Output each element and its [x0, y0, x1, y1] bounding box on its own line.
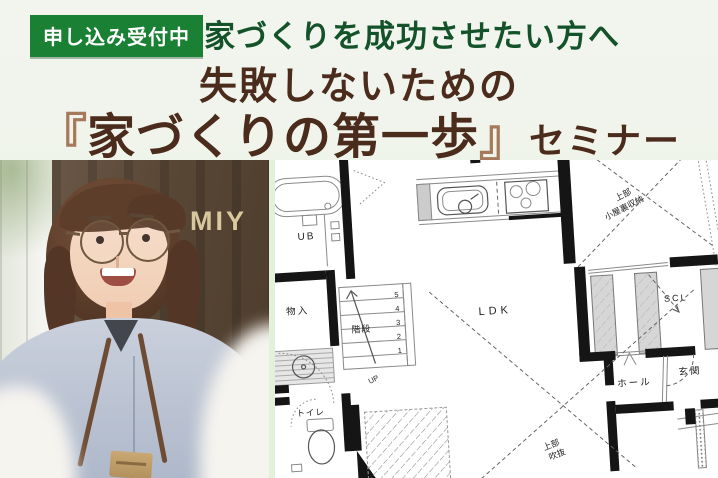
burner-2: [526, 181, 541, 196]
scl-shelf-3: [700, 268, 718, 349]
kitchen-divider: [497, 182, 499, 214]
floor-plan-svg: UB 物入: [275, 160, 718, 478]
stair-rail-strip: [403, 283, 416, 365]
void-label-group: 上部 吹抜: [541, 436, 567, 463]
label-stairs: 階段: [351, 323, 372, 335]
roof-dashed-corner: [354, 169, 386, 205]
backdrop-logo-text: MIY: [190, 206, 247, 237]
kitchen-end-panel: [417, 184, 432, 221]
label-up: UP: [367, 373, 380, 386]
label-toilet: トイレ: [296, 407, 325, 419]
bracket-close: 』: [479, 110, 529, 166]
kitchen-back-line: [416, 170, 568, 179]
nose: [116, 256, 119, 268]
wall-washer-bottom: [275, 385, 289, 395]
wall-storage-right: [326, 270, 340, 346]
wall-top-stub: [470, 160, 481, 163]
wall-hall-left: [604, 359, 615, 386]
kitchen-faucet: [458, 200, 472, 214]
status-badge: 申し込み受付中: [30, 15, 203, 57]
stair-num-4: 4: [395, 304, 400, 313]
stair-num-1: 1: [397, 346, 402, 355]
kitchen-faucet-arm: [470, 194, 478, 199]
wall-attic-bottom-right: [670, 254, 718, 267]
genkan-step-2: [664, 356, 671, 402]
wall-hall-bottom: [615, 401, 673, 414]
attic-edge-dotted-1: [694, 160, 716, 267]
label-storage: 物入: [286, 304, 310, 317]
stair-num-5: 5: [394, 290, 399, 299]
glasses-bridge: [119, 232, 128, 235]
title-suffix: セミナー: [529, 120, 681, 161]
hatched-area: [364, 407, 450, 478]
wall-ub-bottom: [275, 270, 326, 283]
bath-fixture-2: [331, 233, 339, 240]
attic-diagonal-2: [574, 160, 714, 255]
bracket-open: 『: [37, 110, 87, 166]
staff-photo: MIY: [0, 160, 269, 478]
stair-num-2: 2: [397, 332, 402, 341]
genkan-step-1: [660, 356, 667, 402]
attic-diagonal-1: [570, 160, 711, 267]
seminar-promo-banner: 申し込み受付中 家づくりを成功させたい方へ 失敗しないための 『家づくりの第一歩…: [0, 0, 718, 478]
name-tag: [109, 451, 153, 478]
burner-1: [510, 185, 523, 198]
wall-toilet-top: [275, 397, 290, 407]
bath-step: [302, 215, 317, 226]
wall-scl-left: [574, 267, 591, 361]
wall-ub-right: [339, 160, 355, 279]
bath-drain: [325, 203, 331, 209]
toilet-paper-holder: [292, 464, 302, 472]
bath-fixture-1: [331, 221, 339, 228]
attic-label-group: 上部 小屋裏収納: [597, 183, 645, 222]
porch-dotted-wall: [695, 410, 707, 468]
toilet-bowl: [307, 429, 335, 465]
label-ldk: LDK: [478, 304, 512, 318]
bath-partition: [324, 214, 327, 266]
attic-edge-dotted-2: [702, 160, 718, 267]
stair-num-3: 3: [396, 318, 401, 327]
plan-rotated-group: UB 物入: [275, 160, 718, 478]
floor-plan-panel: UB 物入: [275, 160, 718, 478]
burner-3: [521, 198, 532, 209]
wall-genkan-bottom: [700, 398, 718, 409]
label-scl: SCL: [664, 292, 688, 303]
label-ub: UB: [297, 231, 316, 243]
title-main: 家づくりの第一歩: [87, 111, 479, 164]
label-entrance: 玄関: [678, 365, 702, 378]
porch-wall-stub: [685, 408, 696, 425]
header: 申し込み受付中 家づくりを成功させたい方へ 失敗しないための 『家づくりの第一歩…: [0, 0, 718, 160]
label-hall: ホール: [617, 377, 652, 390]
glasses-right-lens: [126, 218, 170, 262]
teeth: [102, 268, 134, 276]
tagline: 家づくりを成功させたい方へ: [204, 11, 620, 56]
